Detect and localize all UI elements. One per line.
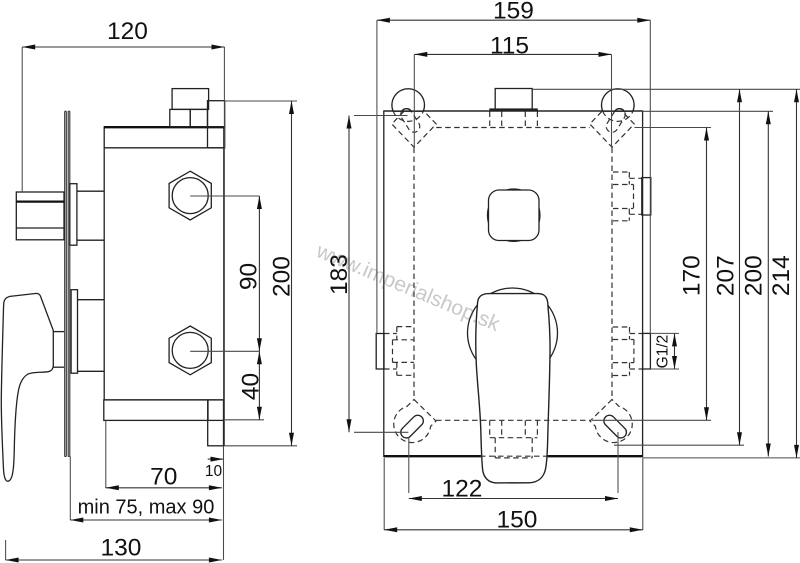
svg-text:115: 115	[490, 33, 529, 60]
svg-text:159: 159	[493, 0, 534, 25]
svg-text:10: 10	[205, 463, 223, 480]
svg-text:207: 207	[713, 255, 740, 296]
svg-text:170: 170	[679, 255, 706, 296]
svg-text:130: 130	[101, 535, 142, 562]
svg-text:70: 70	[150, 464, 177, 491]
svg-text:90: 90	[236, 263, 263, 290]
svg-text:122: 122	[442, 476, 483, 503]
svg-text:min 75, max 90: min 75, max 90	[78, 497, 215, 519]
svg-text:150: 150	[497, 507, 538, 534]
svg-text:200: 200	[741, 255, 768, 296]
svg-text:214: 214	[768, 255, 795, 296]
svg-text:120: 120	[107, 18, 148, 45]
svg-text:G1/2: G1/2	[655, 335, 672, 369]
svg-text:40: 40	[238, 373, 265, 400]
svg-text:200: 200	[269, 256, 296, 297]
